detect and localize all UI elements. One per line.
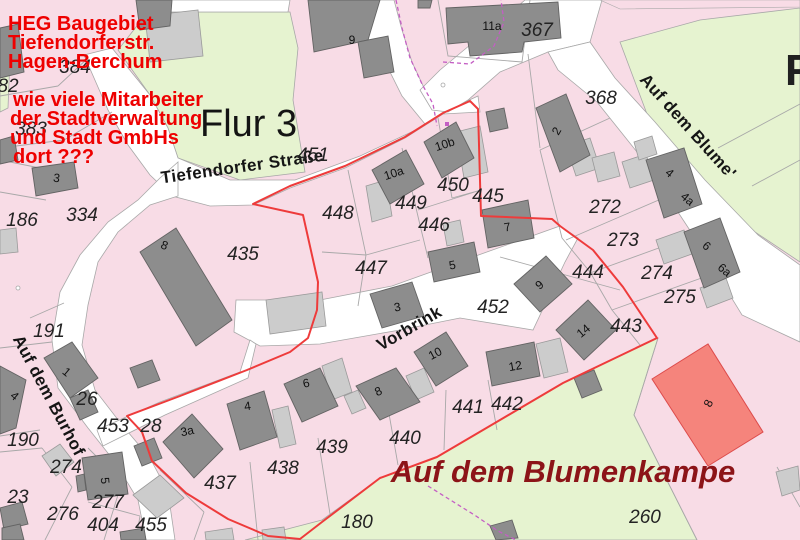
annotation-line: Hagen-Berchum [8, 51, 162, 73]
parcel-number: 26 [75, 389, 98, 410]
annotation-line: dort ??? [13, 146, 94, 168]
survey-mark [445, 122, 449, 126]
parcel-number: 404 [87, 515, 119, 536]
parcel-number: 23 [6, 487, 29, 508]
map-canvas: Tiefendorfer Straße Vorbrink Auf dem Bur… [0, 0, 800, 540]
parcel-number: 274 [49, 457, 82, 478]
parcel-number: 442 [491, 394, 523, 415]
parcel-number: 438 [267, 458, 299, 479]
parcel-number: 190 [7, 430, 39, 451]
street-label-blumenkampe: Auf dem Blumenkampe [390, 454, 736, 489]
parcel-number: 28 [139, 416, 162, 437]
parcel-number: 446 [418, 215, 450, 236]
survey-point [16, 286, 20, 290]
parcel-number: 444 [572, 262, 604, 283]
parcel-number: 180 [341, 512, 373, 533]
parcel-number: 334 [66, 205, 98, 226]
parcel-number: 449 [395, 193, 427, 214]
parcel-number: 260 [628, 507, 661, 528]
parcel-number: 276 [46, 504, 79, 525]
building-number: 9 [349, 33, 356, 47]
parcel-number: 275 [663, 287, 696, 308]
parcel-number: 443 [610, 316, 642, 337]
edge-partial-letter: F [785, 46, 800, 95]
building-number: 11a [482, 19, 501, 33]
parcel-number: 450 [437, 175, 469, 196]
parcel-number: 273 [606, 230, 639, 251]
survey-point [441, 83, 445, 87]
parcel-number: 368 [585, 88, 617, 109]
parcel-number: 274 [640, 263, 673, 284]
parcel-number: 453 [97, 416, 129, 437]
parcel-number: 451 [297, 145, 329, 166]
parcel-number: 437 [204, 473, 237, 494]
parcel-number: 447 [355, 258, 388, 279]
building-number: 12 [508, 358, 524, 374]
district-label-flur3: Flur 3 [200, 103, 297, 145]
cadastral-map: Tiefendorfer Straße Vorbrink Auf dem Bur… [0, 0, 800, 540]
parcel-number: 448 [322, 203, 354, 224]
parcel-number: 441 [452, 397, 484, 418]
parcel-number: 439 [316, 437, 348, 458]
parcel-number: 440 [389, 428, 421, 449]
parcel-number: 452 [477, 297, 509, 318]
parcel-number: 435 [227, 244, 259, 265]
parcel-number: 445 [472, 186, 504, 207]
parcel-number: 191 [33, 321, 65, 342]
parcel-number: 272 [588, 197, 621, 218]
parcel-number: 367 [521, 20, 554, 41]
parcel-number: 277 [91, 492, 125, 513]
parcel-number: 455 [135, 515, 167, 536]
parcel-number: 186 [6, 210, 38, 231]
